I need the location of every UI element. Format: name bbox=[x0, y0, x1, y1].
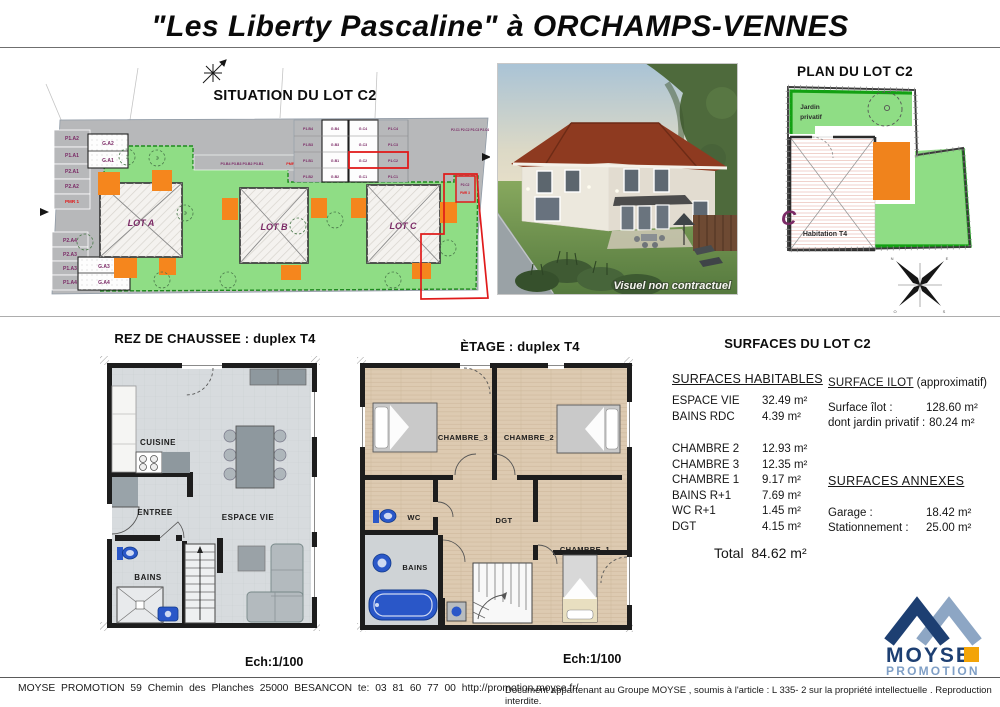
svg-text:P1.A1: P1.A1 bbox=[65, 153, 79, 159]
toilet-icon bbox=[117, 547, 138, 560]
photo-fence bbox=[693, 215, 738, 251]
compass-rose: NE OS bbox=[891, 256, 949, 314]
room-label-dgt: DGT bbox=[495, 516, 512, 525]
svg-text:P1.B1: P1.B1 bbox=[303, 159, 313, 163]
svg-text:P1.C1: P1.C1 bbox=[388, 175, 398, 179]
situation-plan: SITUATION DU LOT C2 P3.B4 P3.B3 P3.B2 P3… bbox=[30, 58, 490, 310]
lot-c-label: LOT C bbox=[390, 221, 417, 231]
strip-b: P3.B4 P3.B3 P3.B2 P3.B1 PMR 2 bbox=[194, 155, 306, 170]
room-label-bains-rdc: BAINS bbox=[134, 573, 162, 582]
svg-text:P1.B2: P1.B2 bbox=[303, 175, 313, 179]
svg-text:P1.C2: P1.C2 bbox=[388, 159, 398, 163]
etage-stairs bbox=[473, 563, 532, 623]
svg-text:P1.B4: P1.B4 bbox=[303, 127, 313, 131]
page-title: "Les Liberty Pascaline" à ORCHAMPS-VENNE… bbox=[0, 10, 1000, 44]
surface-row: CHAMBRE 3 12.35 m² bbox=[672, 458, 827, 474]
svg-text:G.C4: G.C4 bbox=[359, 127, 367, 131]
svg-text:G.B4: G.B4 bbox=[331, 127, 339, 131]
surfaces-title: SURFACES DU LOT C2 bbox=[655, 336, 940, 351]
photo-caption: Visuel non contractuel bbox=[613, 280, 732, 292]
surfaces-total: Total 84.62 m² bbox=[672, 545, 827, 561]
east-arrow-icon bbox=[482, 153, 490, 161]
svg-text:G.A4: G.A4 bbox=[98, 280, 110, 286]
surface-row: Surface îlot : 128.60 m² bbox=[828, 401, 1000, 416]
surface-row: BAINS RDC 4.39 m² bbox=[672, 410, 827, 426]
west-arrow-icon bbox=[40, 208, 49, 216]
house-lot-b: LOT B bbox=[240, 188, 308, 263]
moyse-logo: MOYSE PROMOTION bbox=[873, 594, 995, 678]
situation-title: SITUATION DU LOT C2 bbox=[213, 88, 376, 104]
kitchen-cabinet-2 bbox=[112, 477, 138, 507]
dining-set bbox=[224, 426, 286, 488]
svg-text:N: N bbox=[891, 256, 894, 261]
bed-chambre2 bbox=[557, 405, 620, 453]
c2-stall: P2.C2 PMR 3 bbox=[456, 176, 475, 202]
svg-text:P1.C4: P1.C4 bbox=[388, 127, 398, 131]
surfaces-annexes-header: SURFACES ANNEXES bbox=[828, 474, 1000, 488]
washbasin-unit bbox=[447, 602, 466, 621]
plan-c2-title: PLAN DU LOT C2 bbox=[797, 64, 913, 79]
house-lot-c: LOT C bbox=[367, 185, 440, 263]
logo-mark-navy bbox=[889, 606, 945, 642]
rdc-scale: Ech:1/100 bbox=[245, 655, 345, 669]
jardin-label-1: Jardin bbox=[800, 104, 820, 111]
section-divider bbox=[0, 316, 1000, 317]
habitation-label: Habitation T4 bbox=[803, 231, 847, 238]
room-label-bains-etage: BAINS bbox=[402, 563, 427, 572]
svg-text:P1.A4: P1.A4 bbox=[63, 280, 77, 286]
title-divider bbox=[0, 47, 1000, 48]
surface-ilot-header: SURFACE ILOT (approximatif) bbox=[828, 377, 1000, 389]
p2c-row-label: P2.C1 P2.C2 P2.C3 P2.C4 bbox=[451, 128, 489, 132]
cooktop bbox=[136, 452, 162, 473]
room-label-chambre1: CHAMBRE_1 bbox=[560, 545, 610, 554]
surface-row: BAINS R+1 7.69 m² bbox=[672, 489, 827, 505]
surface-row: ESPACE VIE 32.49 m² bbox=[672, 394, 827, 410]
room-label-chambre2: CHAMBRE_2 bbox=[504, 433, 554, 442]
svg-text:P1.A2: P1.A2 bbox=[65, 136, 79, 142]
svg-text:G.B1: G.B1 bbox=[331, 159, 339, 163]
surface-row: Stationnement : 25.00 m² bbox=[828, 521, 1000, 536]
svg-text:P2.A2: P2.A2 bbox=[65, 184, 79, 190]
pmr3-label: PMR 3 bbox=[460, 191, 470, 195]
svg-text:G.C2: G.C2 bbox=[359, 159, 367, 163]
svg-text:P1.A3: P1.A3 bbox=[63, 266, 77, 272]
jardin-label-2: privatif bbox=[800, 114, 823, 121]
etage-floorplan: CHAMBRE_3 CHAMBRE_2 WC DGT BAINS CHAMBRE… bbox=[357, 352, 635, 636]
footer-legal: Document appartenant au Groupe MOYSE , s… bbox=[505, 685, 1000, 707]
rdc-title: REZ DE CHAUSSEE : duplex T4 bbox=[85, 331, 345, 346]
rdc-floorplan: CUISINE ENTREE ESPACE VIE BAINS bbox=[100, 352, 320, 636]
lot-a-label: LOT A bbox=[128, 218, 155, 228]
room-label-wc: WC bbox=[407, 513, 420, 522]
svg-text:G.B3: G.B3 bbox=[331, 143, 339, 147]
jardin-privatif-area bbox=[791, 91, 912, 134]
surface-ilot: SURFACE ILOT (approximatif) Surface îlot… bbox=[828, 377, 1000, 535]
logo-orange-square bbox=[964, 647, 979, 662]
svg-text:P1.B3: P1.B3 bbox=[303, 143, 313, 147]
lot-letter: C bbox=[781, 207, 797, 230]
surface-row: dont jardin privatif : 80.24 m² bbox=[828, 416, 1000, 431]
plan-lot-c2: PLAN DU LOT C2 Jardin privatif Habitatio… bbox=[755, 58, 995, 320]
svg-text:P2.C2: P2.C2 bbox=[461, 183, 470, 187]
footer-divider bbox=[0, 677, 1000, 678]
kitchen-cabinet bbox=[162, 452, 190, 473]
svg-text:O: O bbox=[893, 309, 896, 314]
room-label-entree: ENTREE bbox=[137, 508, 173, 517]
house-photo: Visuel non contractuel bbox=[497, 63, 738, 295]
wc-toilet-icon bbox=[373, 510, 396, 524]
surface-row: DGT 4.15 m² bbox=[672, 520, 827, 536]
logo-sub: PROMOTION bbox=[886, 664, 980, 678]
room-label-cuisine: CUISINE bbox=[140, 438, 176, 447]
rdc-stairs bbox=[185, 544, 215, 623]
svg-text:P1.C3: P1.C3 bbox=[388, 143, 398, 147]
svg-text:P2.A1: P2.A1 bbox=[65, 169, 79, 175]
bathtub-icon bbox=[369, 590, 437, 620]
svg-text:G.B2: G.B2 bbox=[331, 175, 339, 179]
bed-chambre3 bbox=[373, 403, 437, 452]
footer-address: MOYSE PROMOTION 59 Chemin des Planches 2… bbox=[18, 683, 579, 694]
north-indicator bbox=[203, 60, 226, 83]
svg-text:G.A2: G.A2 bbox=[102, 141, 114, 147]
svg-text:G.C3: G.C3 bbox=[359, 143, 367, 147]
svg-text:P2.A3: P2.A3 bbox=[63, 252, 77, 258]
surface-row: CHAMBRE 2 12.93 m² bbox=[672, 442, 827, 458]
surface-row: CHAMBRE 1 9.17 m² bbox=[672, 473, 827, 489]
room-label-espace-vie: ESPACE VIE bbox=[222, 513, 275, 522]
svg-text:P2.A4: P2.A4 bbox=[63, 238, 77, 244]
surface-row: Garage : 18.42 m² bbox=[828, 506, 1000, 521]
terrace-c2 bbox=[873, 142, 910, 200]
surfaces-habitables-header: SURFACES HABITABLES bbox=[672, 372, 827, 386]
svg-text:G.A1: G.A1 bbox=[102, 158, 114, 164]
room-label-chambre3: CHAMBRE_3 bbox=[438, 433, 488, 442]
svg-text:G.A3: G.A3 bbox=[98, 264, 110, 270]
surface-row: WC R+1 1.45 m² bbox=[672, 504, 827, 520]
bed-chambre1 bbox=[563, 555, 597, 622]
svg-text:E: E bbox=[946, 256, 949, 261]
pmr1-label: PMR 1 bbox=[65, 199, 79, 204]
surfaces-habitables: SURFACES HABITABLES ESPACE VIE 32.49 m² … bbox=[672, 372, 827, 561]
svg-text:G.C1: G.C1 bbox=[359, 175, 367, 179]
svg-text:S: S bbox=[943, 309, 946, 314]
etage-scale: Ech:1/100 bbox=[563, 652, 663, 666]
lot-b-label: LOT B bbox=[261, 222, 288, 232]
strip-b-label: P3.B4 P3.B3 P3.B2 P3.B1 bbox=[221, 162, 264, 166]
